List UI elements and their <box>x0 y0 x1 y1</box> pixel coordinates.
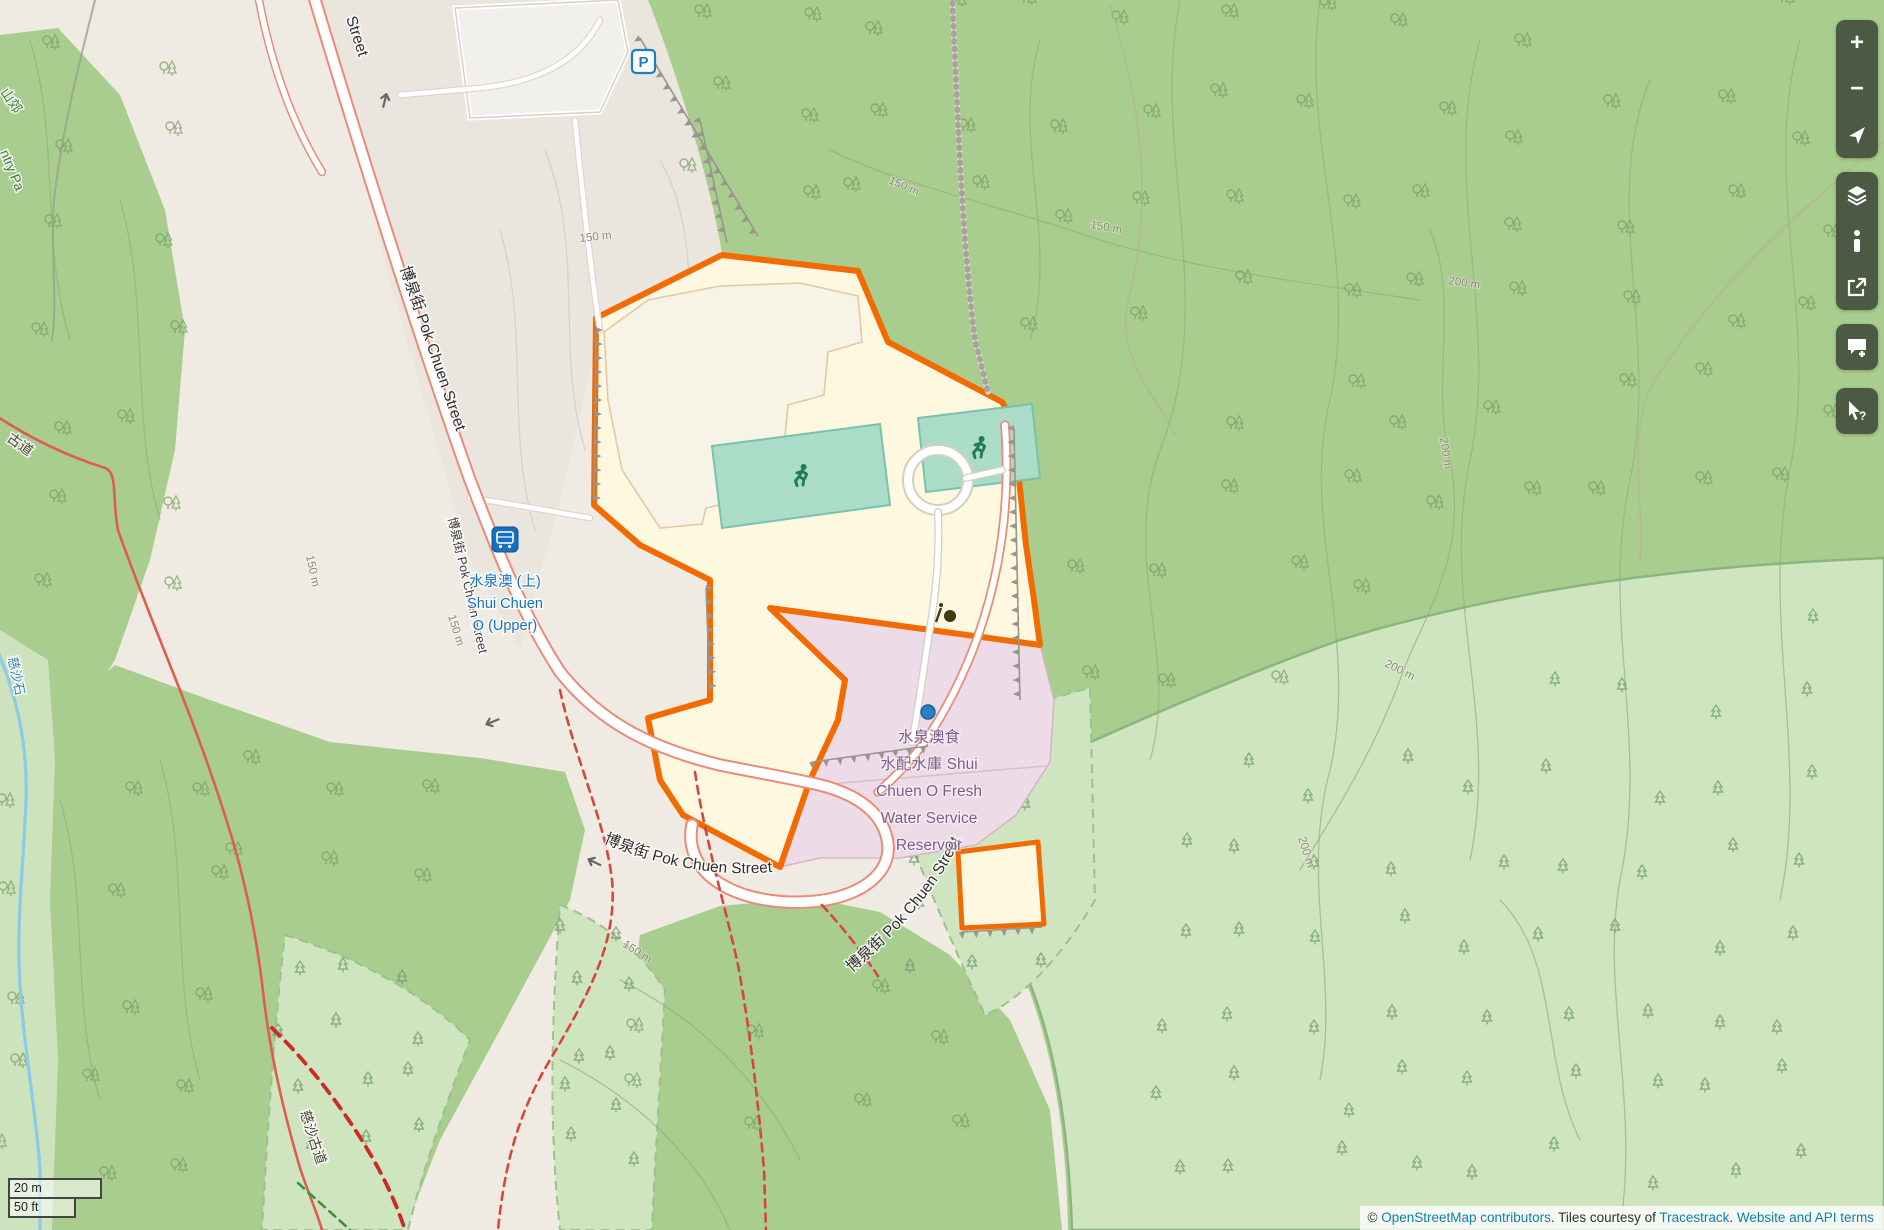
comment-plus-icon <box>1846 336 1868 358</box>
cursor-question-icon: ? <box>1845 399 1869 423</box>
scale-bar: 20 m 50 ft <box>8 1178 102 1218</box>
svg-text:Reservoir: Reservoir <box>896 837 962 854</box>
tracestrack-link[interactable]: Tracestrack <box>1659 1210 1729 1225</box>
query-features-button[interactable]: ? <box>1836 388 1878 434</box>
info-icon <box>1853 230 1861 252</box>
svg-text:P: P <box>638 54 648 71</box>
info-button[interactable] <box>1836 218 1878 264</box>
svg-text:Shui Chuen: Shui Chuen <box>467 596 543 612</box>
map-canvas[interactable]: P 博泉街 Pok Chuen Street 博泉街 Pok Chuen Str… <box>0 0 1884 1230</box>
svg-text:水泉澳食: 水泉澳食 <box>898 728 961 746</box>
map-controls: + − <box>1836 20 1878 434</box>
svg-text:Water Service: Water Service <box>881 810 978 827</box>
locate-button[interactable] <box>1836 112 1878 158</box>
add-note-button[interactable] <box>1836 324 1878 370</box>
osm-contributors-link[interactable]: OpenStreetMap contributors <box>1381 1210 1551 1225</box>
svg-text:150 m: 150 m <box>445 613 466 647</box>
svg-text:水配水庫 Shui: 水配水庫 Shui <box>880 755 977 773</box>
copyright-text: © <box>1368 1210 1382 1225</box>
attribution-text: . Tiles courtesy of <box>1551 1210 1660 1225</box>
bus-stop-label: 水泉澳 (上) Shui Chuen O (Upper) <box>467 573 543 634</box>
svg-text:?: ? <box>1859 409 1866 423</box>
share-icon <box>1846 276 1868 298</box>
svg-text:150 m: 150 m <box>303 554 321 588</box>
scale-metric: 20 m <box>8 1178 102 1199</box>
layers-icon <box>1846 184 1868 206</box>
attribution-separator: . <box>1729 1210 1737 1225</box>
svg-text:水泉澳 (上): 水泉澳 (上) <box>469 573 541 590</box>
parking-icon[interactable]: P <box>632 50 655 73</box>
scale-imperial: 50 ft <box>8 1199 76 1218</box>
map-app: P 博泉街 Pok Chuen Street 博泉街 Pok Chuen Str… <box>0 0 1884 1230</box>
zoom-in-button[interactable]: + <box>1836 20 1878 66</box>
node-marker[interactable] <box>921 705 935 719</box>
bus-stop-icon[interactable] <box>492 527 518 552</box>
locate-icon <box>1847 125 1867 145</box>
attribution-bar: © OpenStreetMap contributors. Tiles cour… <box>1360 1206 1884 1230</box>
share-button[interactable] <box>1836 264 1878 310</box>
layers-button[interactable] <box>1836 172 1878 218</box>
terms-link[interactable]: Website and API terms <box>1737 1210 1874 1225</box>
svg-text:Chuen O Fresh: Chuen O Fresh <box>876 783 982 800</box>
svg-text:O (Upper): O (Upper) <box>473 618 537 634</box>
zoom-out-button[interactable]: − <box>1836 66 1878 112</box>
